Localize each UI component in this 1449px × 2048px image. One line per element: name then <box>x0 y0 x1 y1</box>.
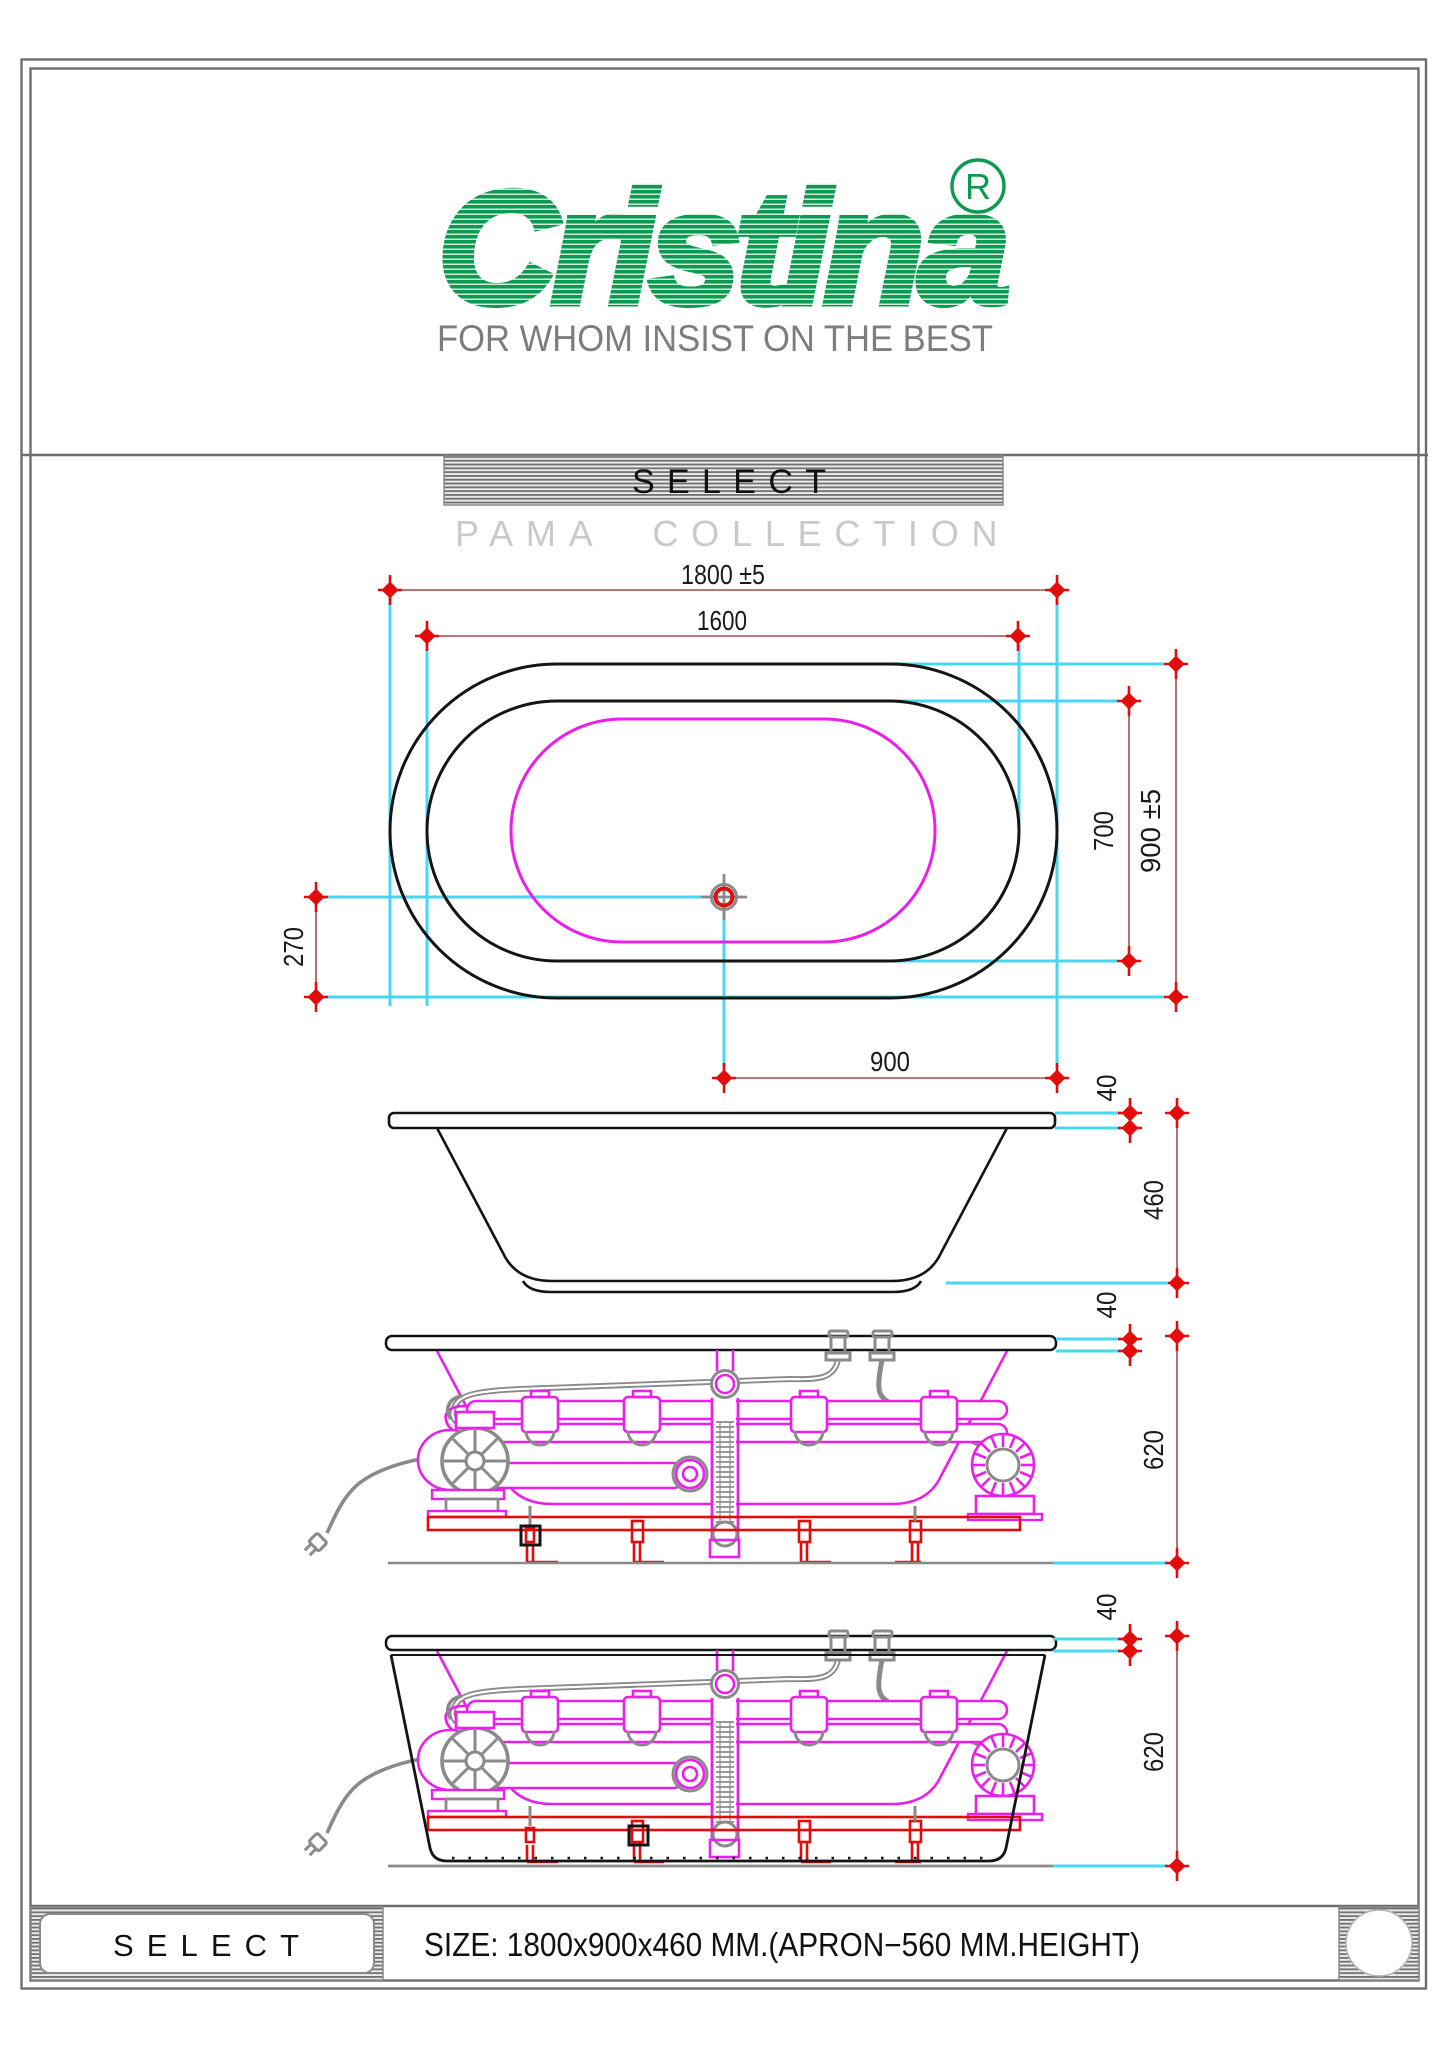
svg-text:SELECT: SELECT <box>113 1928 321 1963</box>
svg-text:PAMA COLLECTION: PAMA COLLECTION <box>455 513 1021 554</box>
svg-text:1800 ±5: 1800 ±5 <box>681 559 765 590</box>
svg-text:620: 620 <box>1138 1430 1169 1470</box>
svg-text:40: 40 <box>1091 1075 1122 1102</box>
svg-text:40: 40 <box>1091 1292 1122 1319</box>
svg-text:460: 460 <box>1138 1180 1169 1220</box>
svg-text:900: 900 <box>870 1046 910 1077</box>
svg-text:620: 620 <box>1138 1732 1169 1772</box>
svg-text:700: 700 <box>1088 811 1119 851</box>
svg-text:270: 270 <box>278 927 309 967</box>
svg-text:40: 40 <box>1091 1594 1122 1621</box>
svg-text:SELECT: SELECT <box>632 463 847 501</box>
svg-text:FOR WHOM INSIST ON THE BEST: FOR WHOM INSIST ON THE BEST <box>437 318 993 359</box>
svg-text:900 ±5: 900 ±5 <box>1135 789 1166 873</box>
svg-text:Cristina: Cristina <box>438 158 1006 337</box>
svg-text:R: R <box>965 166 991 207</box>
svg-text:1600: 1600 <box>697 605 747 636</box>
svg-text:SIZE: 1800x900x460 MM.(APRON: SIZE: 1800x900x460 MM.(APRON−560 MM.HEIG… <box>424 1926 1140 1963</box>
